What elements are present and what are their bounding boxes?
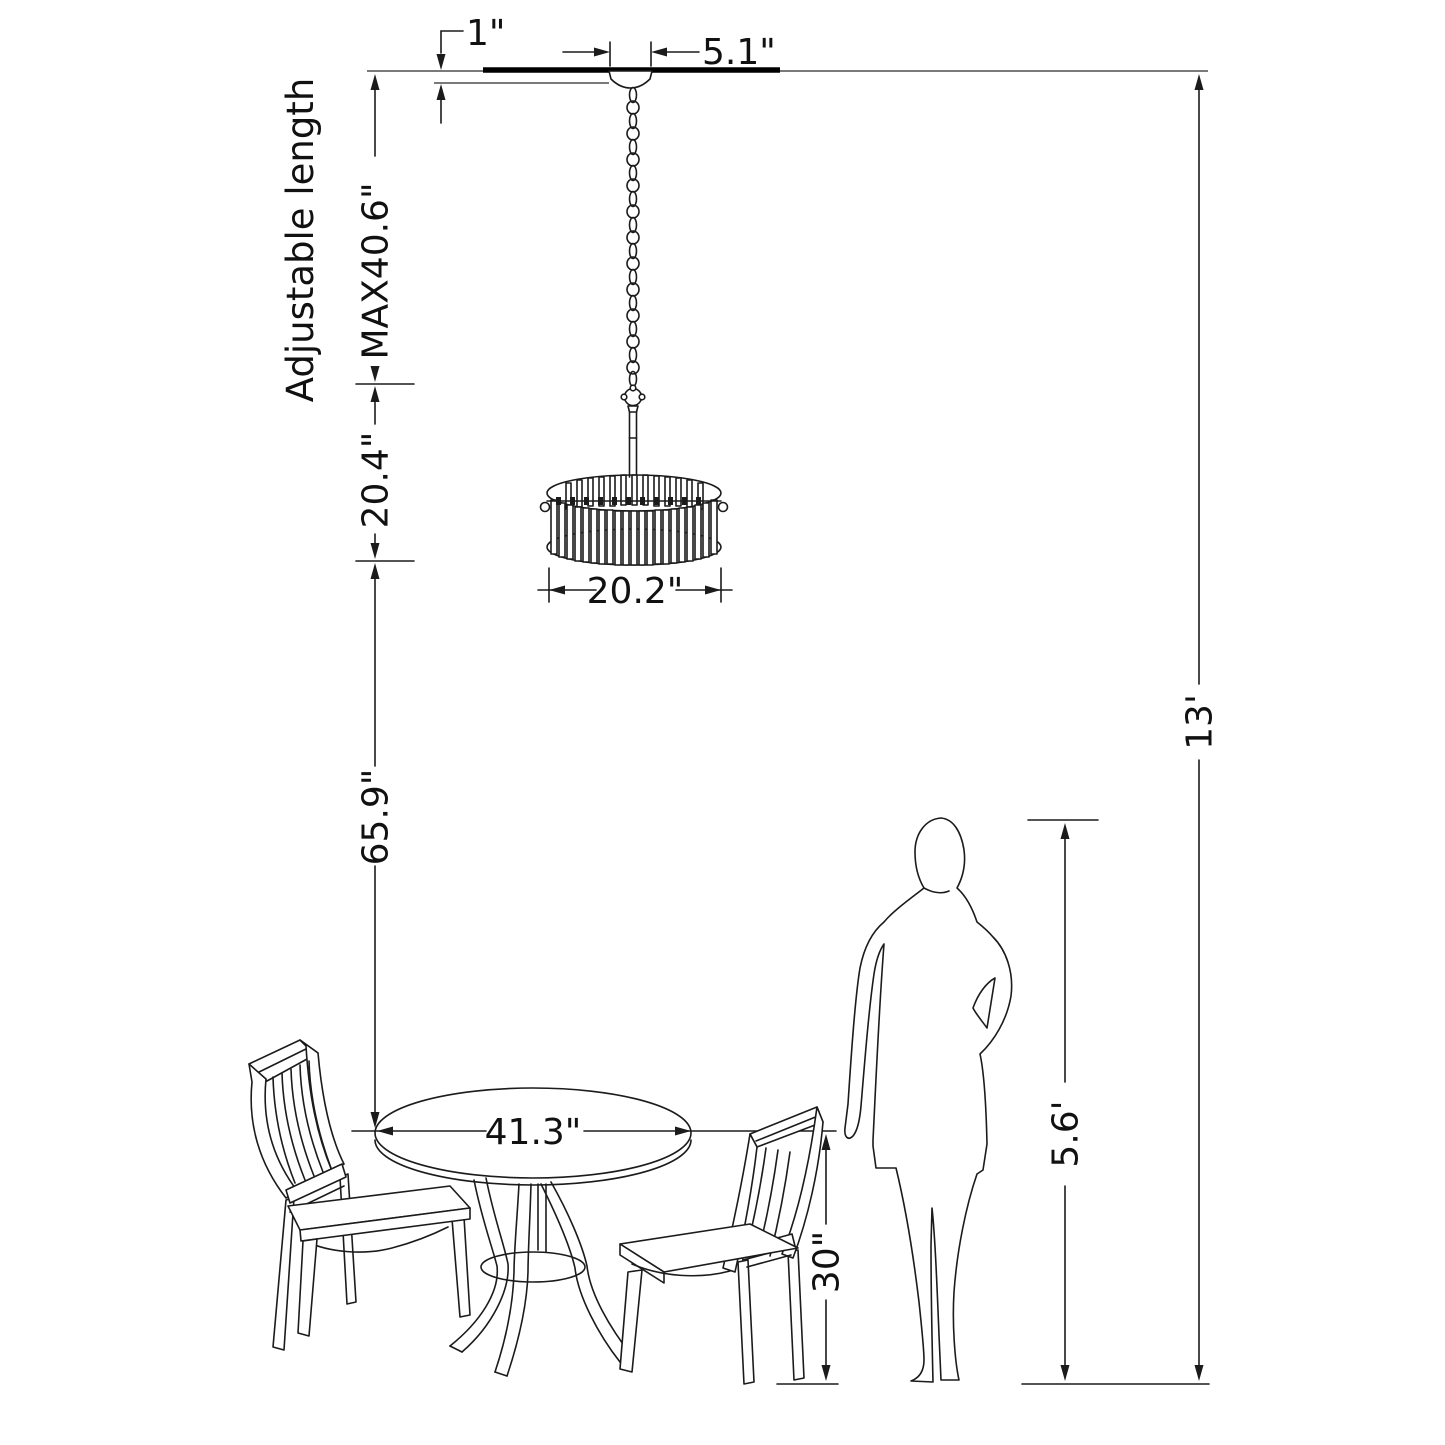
chandelier: 20.2"	[538, 71, 732, 612]
table-height-label: 30"	[807, 1231, 848, 1293]
shade-to-table-label: 65.9"	[356, 769, 397, 866]
ceiling-height-label: 13'	[1180, 694, 1221, 750]
dimension-ceiling-height: 13'	[1180, 74, 1221, 1381]
chain-max-label: MAX40.6"	[356, 182, 397, 359]
shade-diameter-label: 20.2"	[587, 571, 684, 612]
dimension-diagram: 1" 5.1" Adjustable length MAX40.6" 20.4"…	[0, 0, 1445, 1445]
chair-left	[249, 1040, 470, 1350]
finial	[621, 385, 645, 412]
chain	[627, 88, 639, 387]
woman-silhouette	[845, 818, 1012, 1382]
canopy-width-label: 5.1"	[702, 32, 776, 73]
dimension-shade-diameter: 20.2"	[538, 568, 732, 612]
ceiling	[367, 70, 1208, 83]
adjustable-length-label: Adjustable length	[279, 78, 322, 403]
table-pedestal	[450, 1178, 632, 1376]
drum-front-slats	[551, 500, 717, 565]
fixture-height-label: 20.4"	[356, 432, 397, 529]
dimension-person-height: 5.6'	[1028, 820, 1098, 1381]
dimension-canopy-width: 5.1"	[563, 32, 776, 73]
dimension-chain-left: Adjustable length MAX40.6" 20.4" 65.9"	[279, 74, 414, 1128]
person-height-label: 5.6'	[1046, 1100, 1087, 1167]
table-diameter-label: 41.3"	[485, 1112, 582, 1153]
drum-shade	[541, 475, 728, 565]
canopy	[609, 71, 652, 88]
canopy-drop-label: 1"	[466, 13, 505, 54]
stem-rod	[630, 412, 637, 477]
